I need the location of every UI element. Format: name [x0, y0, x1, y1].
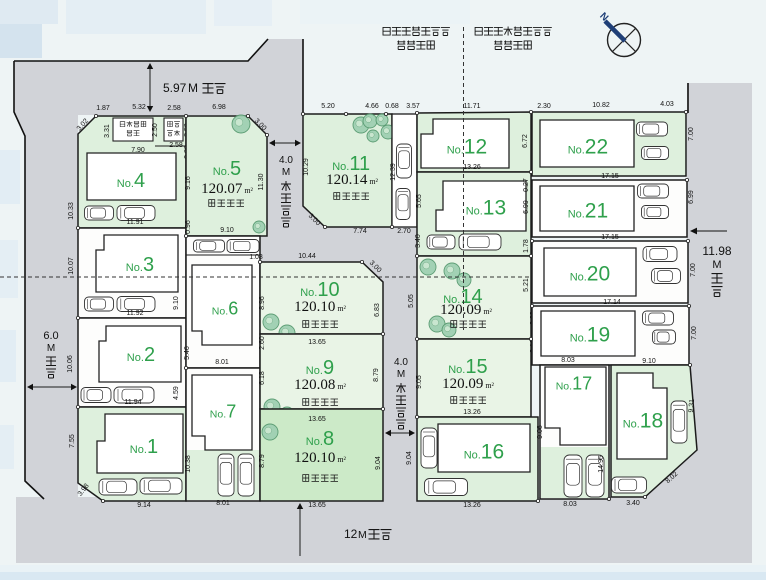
svg-text:No.: No.	[306, 365, 323, 377]
svg-text:10.82: 10.82	[592, 102, 610, 109]
svg-text:13.65: 13.65	[308, 339, 326, 346]
svg-text:19: 19	[587, 324, 610, 347]
svg-text:6.99: 6.99	[688, 190, 695, 204]
svg-text:20: 20	[587, 263, 610, 286]
svg-text:No.: No.	[568, 209, 585, 221]
svg-text:No.: No.	[300, 287, 317, 299]
svg-text:18: 18	[640, 410, 663, 433]
svg-text:0.96: 0.96	[185, 220, 192, 234]
svg-text:12.39: 12.39	[390, 163, 397, 181]
svg-text:No.: No.	[213, 166, 230, 178]
svg-text:8.96: 8.96	[259, 296, 266, 310]
svg-text:No.: No.	[130, 444, 147, 456]
svg-text:2.60: 2.60	[259, 336, 266, 350]
svg-text:4: 4	[134, 170, 145, 192]
svg-text:M: M	[358, 529, 367, 541]
svg-text:9.10: 9.10	[642, 358, 656, 365]
svg-text:3: 3	[143, 254, 154, 276]
svg-text:13.26: 13.26	[463, 502, 481, 509]
svg-text:No.: No.	[556, 381, 572, 393]
svg-text:9.06: 9.06	[537, 425, 544, 439]
svg-text:No.: No.	[210, 409, 226, 421]
svg-text:3.31: 3.31	[104, 124, 111, 138]
svg-text:No.: No.	[306, 436, 323, 448]
svg-text:2.58: 2.58	[169, 142, 183, 149]
svg-text:8.03: 8.03	[563, 501, 577, 508]
svg-text:6.99: 6.99	[523, 200, 530, 214]
svg-text:5.21: 5.21	[523, 278, 530, 292]
svg-text:11.92: 11.92	[127, 310, 144, 317]
svg-text:1: 1	[147, 436, 158, 458]
svg-text:12: 12	[464, 136, 487, 159]
svg-text:10.38: 10.38	[185, 455, 192, 473]
svg-text:5.32: 5.32	[132, 104, 146, 111]
svg-text:5.05: 5.05	[408, 294, 415, 308]
svg-text:10.33: 10.33	[68, 202, 75, 220]
svg-text:1.78: 1.78	[523, 239, 530, 253]
svg-text:11.71: 11.71	[464, 103, 481, 110]
svg-text:7.74: 7.74	[353, 228, 367, 235]
svg-text:8: 8	[323, 428, 334, 450]
svg-text:No.: No.	[448, 364, 465, 376]
svg-text:13: 13	[483, 197, 506, 220]
svg-text:2.30: 2.30	[537, 103, 551, 110]
svg-text:No.: No.	[568, 145, 585, 157]
svg-text:5.65: 5.65	[416, 194, 423, 208]
svg-text:No.: No.	[117, 178, 134, 190]
svg-text:9.10: 9.10	[220, 227, 234, 234]
svg-text:No.: No.	[212, 306, 228, 318]
svg-text:8.79: 8.79	[373, 368, 380, 382]
svg-text:8.03: 8.03	[561, 357, 575, 364]
svg-text:M: M	[282, 167, 290, 178]
svg-text:7.55: 7.55	[69, 434, 76, 448]
svg-text:7.00: 7.00	[691, 326, 698, 340]
svg-text:7.00: 7.00	[688, 127, 695, 141]
svg-text:2.70: 2.70	[397, 228, 411, 235]
svg-text:6.72: 6.72	[522, 134, 529, 148]
svg-text:7.90: 7.90	[131, 147, 145, 154]
svg-text:9.04: 9.04	[375, 456, 382, 470]
svg-text:22: 22	[585, 136, 608, 159]
svg-text:11.30: 11.30	[258, 173, 265, 190]
svg-text:17: 17	[572, 374, 592, 394]
svg-text:6.83: 6.83	[374, 303, 381, 317]
svg-text:4.0: 4.0	[394, 357, 408, 368]
svg-text:4.03: 4.03	[660, 101, 674, 108]
svg-text:9.14: 9.14	[137, 502, 151, 509]
svg-text:1.08: 1.08	[249, 254, 263, 261]
svg-text:No.: No.	[126, 262, 143, 274]
svg-text:11.91: 11.91	[127, 219, 144, 226]
svg-text:13.26: 13.26	[463, 409, 481, 416]
svg-text:17.15: 17.15	[601, 234, 619, 241]
svg-text:11.98: 11.98	[702, 244, 731, 258]
svg-text:9.04: 9.04	[406, 451, 413, 465]
svg-text:2.58: 2.58	[167, 105, 181, 112]
svg-text:7: 7	[226, 402, 236, 422]
svg-text:13.65: 13.65	[308, 502, 326, 509]
svg-text:8.01: 8.01	[216, 500, 230, 507]
svg-text:1.87: 1.87	[96, 105, 110, 112]
svg-text:No.: No.	[447, 145, 464, 157]
svg-text:9.31: 9.31	[688, 399, 696, 413]
svg-text:M: M	[47, 343, 55, 354]
svg-text:5.46: 5.46	[184, 346, 191, 360]
svg-text:2: 2	[144, 344, 155, 366]
svg-text:4.59: 4.59	[173, 386, 180, 400]
svg-text:9.16: 9.16	[185, 176, 192, 190]
svg-text:14.95: 14.95	[598, 455, 605, 473]
svg-text:8.79: 8.79	[259, 454, 266, 468]
svg-text:M: M	[188, 81, 198, 95]
svg-text:No.: No.	[466, 206, 483, 218]
svg-text:12: 12	[344, 527, 358, 541]
svg-text:4.66: 4.66	[365, 103, 379, 110]
svg-text:10.07: 10.07	[68, 257, 75, 275]
svg-text:6.98: 6.98	[212, 104, 226, 111]
svg-text:17.14: 17.14	[603, 299, 621, 306]
svg-text:5.97: 5.97	[163, 81, 187, 95]
svg-text:0.27: 0.27	[523, 178, 530, 192]
svg-text:3.40: 3.40	[626, 500, 640, 507]
svg-text:21: 21	[585, 200, 608, 223]
svg-text:4.0: 4.0	[279, 155, 293, 166]
svg-text:10: 10	[317, 279, 339, 301]
svg-text:No.: No.	[570, 272, 587, 284]
svg-text:17.15: 17.15	[601, 173, 619, 180]
svg-text:10.06: 10.06	[67, 355, 74, 373]
svg-text:6: 6	[228, 299, 238, 319]
svg-text:9.05: 9.05	[416, 375, 423, 389]
svg-text:9.10: 9.10	[173, 296, 180, 310]
svg-text:9: 9	[323, 357, 334, 379]
svg-text:2.50: 2.50	[152, 123, 159, 137]
svg-text:10.44: 10.44	[298, 253, 316, 260]
svg-text:5.20: 5.20	[321, 103, 335, 110]
svg-text:No.: No.	[464, 450, 481, 462]
svg-text:13.65: 13.65	[308, 416, 326, 423]
svg-text:No.: No.	[570, 333, 587, 345]
svg-text:16: 16	[481, 441, 504, 464]
svg-text:13.26: 13.26	[463, 164, 481, 171]
svg-text:3.57: 3.57	[406, 103, 420, 110]
svg-text:10.29: 10.29	[303, 158, 310, 176]
svg-text:M: M	[397, 369, 405, 380]
svg-text:6.18: 6.18	[259, 371, 266, 385]
svg-text:6.0: 6.0	[43, 330, 58, 342]
svg-text:No.: No.	[127, 352, 144, 364]
svg-text:0.68: 0.68	[385, 103, 399, 110]
svg-text:11.94: 11.94	[125, 399, 142, 406]
svg-text:No.: No.	[623, 419, 640, 431]
svg-text:3.40: 3.40	[415, 234, 422, 248]
svg-text:7.00: 7.00	[690, 263, 697, 277]
svg-text:8.01: 8.01	[215, 359, 229, 366]
svg-text:15: 15	[465, 356, 487, 378]
svg-text:M: M	[712, 259, 721, 271]
svg-text:5: 5	[230, 158, 241, 180]
